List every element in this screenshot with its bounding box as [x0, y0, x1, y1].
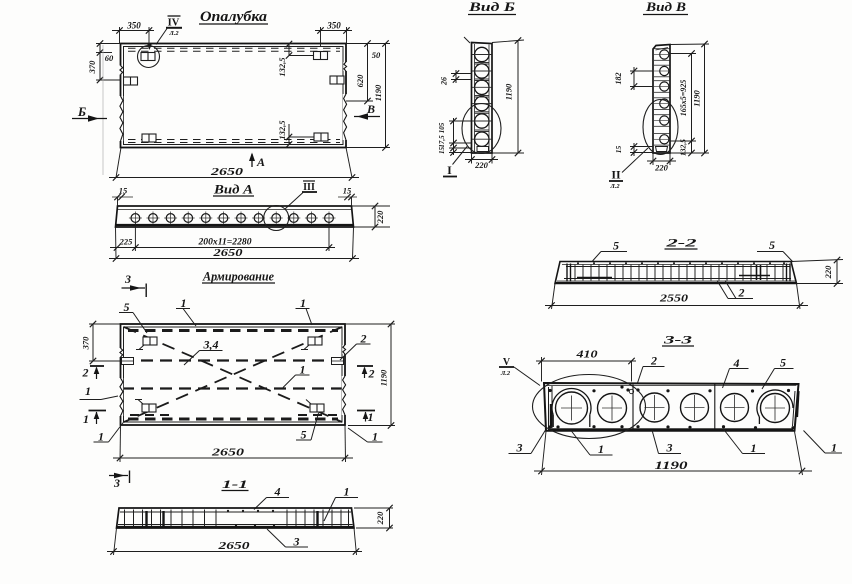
svg-text:5: 5: [301, 428, 307, 442]
svg-text:1190: 1190: [655, 460, 688, 472]
svg-text:II: II: [611, 168, 621, 182]
svg-text:165х5=925: 165х5=925: [679, 80, 688, 117]
svg-text:3: 3: [666, 441, 673, 455]
svg-text:15: 15: [343, 186, 352, 196]
svg-text:1: 1: [751, 441, 757, 455]
svg-text:Б: Б: [77, 104, 86, 119]
svg-text:1: 1: [831, 441, 837, 455]
svg-text:3,4: 3,4: [203, 338, 219, 352]
svg-text:2550: 2550: [659, 293, 689, 305]
svg-text:Л.2: Л.2: [609, 183, 620, 190]
svg-text:1: 1: [98, 430, 104, 444]
svg-text:5: 5: [124, 300, 130, 314]
svg-text:225: 225: [119, 237, 134, 247]
svg-text:3: 3: [516, 441, 523, 455]
svg-text:182: 182: [614, 73, 623, 85]
svg-text:4: 4: [274, 485, 281, 499]
svg-text:А: А: [256, 155, 265, 169]
svg-text:1-1: 1-1: [222, 479, 248, 491]
svg-text:1: 1: [300, 363, 306, 377]
svg-text:2650: 2650: [210, 166, 244, 178]
svg-text:220: 220: [823, 265, 833, 280]
svg-text:620: 620: [355, 74, 365, 88]
svg-text:I: I: [447, 163, 452, 177]
svg-text:132,5: 132,5: [277, 120, 287, 140]
svg-text:220: 220: [474, 160, 489, 170]
svg-text:60: 60: [105, 53, 114, 63]
svg-text:1190: 1190: [504, 83, 514, 100]
svg-text:1: 1: [368, 410, 374, 424]
svg-text:3: 3: [293, 535, 300, 549]
svg-text:370: 370: [81, 336, 91, 351]
svg-text:1: 1: [344, 485, 350, 499]
svg-text:Армирование: Армирование: [202, 269, 274, 284]
svg-text:132,5: 132,5: [277, 57, 287, 77]
svg-text:1: 1: [372, 430, 378, 444]
svg-text:1: 1: [598, 442, 604, 456]
svg-text:Вид Б: Вид Б: [468, 0, 515, 14]
svg-text:Опалубка: Опалубка: [200, 9, 268, 25]
svg-text:220: 220: [654, 163, 669, 173]
svg-text:1190: 1190: [692, 89, 702, 106]
svg-text:2: 2: [360, 332, 367, 346]
svg-text:15: 15: [614, 146, 623, 154]
svg-text:3: 3: [113, 476, 120, 490]
svg-text:3: 3: [124, 272, 131, 286]
svg-text:1: 1: [300, 296, 306, 310]
svg-text:2: 2: [738, 286, 745, 300]
svg-text:220: 220: [375, 511, 385, 526]
svg-text:2: 2: [82, 366, 89, 380]
svg-text:410: 410: [575, 350, 597, 361]
svg-text:1: 1: [83, 412, 89, 426]
svg-text:5: 5: [769, 238, 775, 252]
svg-text:1: 1: [181, 296, 187, 310]
svg-text:5: 5: [613, 239, 619, 253]
svg-text:220: 220: [375, 210, 385, 225]
svg-text:4: 4: [733, 356, 740, 370]
svg-text:5: 5: [780, 356, 786, 370]
svg-text:50: 50: [372, 50, 381, 60]
svg-text:2-2: 2-2: [665, 236, 697, 250]
svg-text:350: 350: [126, 21, 141, 31]
svg-text:Л.2: Л.2: [168, 30, 179, 37]
svg-text:15: 15: [438, 147, 446, 155]
svg-text:2: 2: [368, 367, 375, 381]
svg-text:Л.2: Л.2: [500, 370, 511, 377]
svg-text:2650: 2650: [212, 248, 243, 259]
svg-text:2650: 2650: [211, 447, 245, 459]
svg-text:1190: 1190: [373, 84, 383, 101]
svg-text:1190: 1190: [379, 369, 389, 386]
svg-text:26: 26: [440, 77, 449, 86]
svg-text:350: 350: [326, 21, 341, 31]
svg-text:2650: 2650: [217, 540, 250, 552]
svg-text:Вид А: Вид А: [213, 183, 253, 197]
svg-text:17,5: 17,5: [438, 135, 446, 148]
svg-text:Вид В: Вид В: [645, 0, 686, 14]
svg-text:1: 1: [85, 384, 91, 398]
svg-text:200х11=2280: 200х11=2280: [197, 238, 251, 248]
svg-text:370: 370: [87, 60, 97, 75]
svg-text:105: 105: [438, 122, 446, 133]
svg-text:3-3: 3-3: [662, 333, 692, 347]
svg-text:2: 2: [650, 354, 657, 368]
svg-text:15: 15: [119, 186, 128, 196]
